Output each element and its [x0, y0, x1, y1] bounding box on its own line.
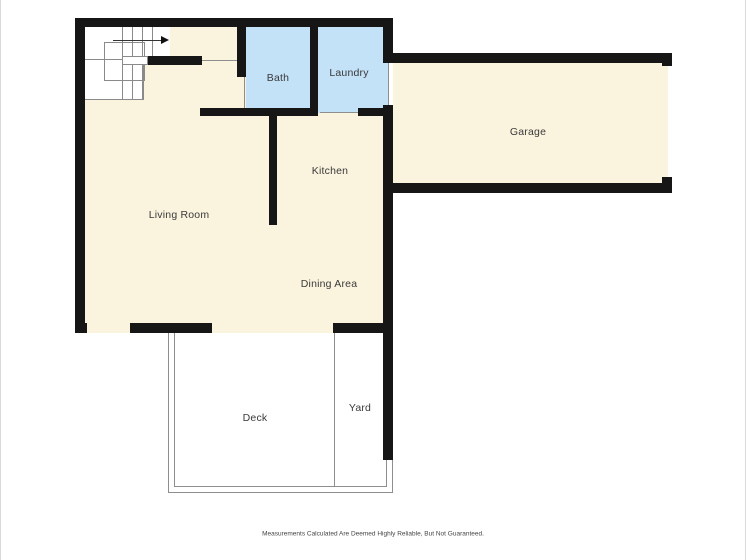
- wall-garage-right-stub-bottom: [662, 177, 672, 193]
- wall-garage-top: [393, 53, 672, 63]
- disclaimer-text: Measurements Calculated Are Deemed Highl…: [262, 531, 484, 538]
- laundry-door-line: [320, 112, 358, 113]
- wall-right-main: [383, 105, 393, 323]
- room-label-laundry: Laundry: [329, 67, 368, 79]
- wall-stair-half: [148, 56, 202, 65]
- wall-right-upper: [383, 18, 393, 63]
- room-label-kitchen: Kitchen: [312, 165, 348, 177]
- deck-rail-outer-right: [392, 460, 393, 493]
- wall-garage-right-stub-top: [662, 53, 672, 66]
- wall-garage-bottom: [393, 183, 672, 193]
- wall-kitchen-top-a: [200, 108, 318, 116]
- garage-door-line: [388, 63, 389, 105]
- room-label-bath: Bath: [267, 72, 289, 84]
- room-label-yard: Yard: [349, 402, 371, 414]
- wall-bottom-segment-1: [130, 323, 212, 333]
- room-label-garage: Garage: [510, 126, 546, 138]
- wall-kitchen-top-b: [358, 108, 383, 116]
- stair-start-marker: [122, 56, 148, 65]
- deck-rail-inner-right: [386, 460, 387, 487]
- wall-yard-right: [383, 333, 393, 460]
- deck-rail-inner-left: [174, 333, 175, 487]
- room-label-deck: Deck: [243, 412, 268, 424]
- deck-rail-outer-bottom: [168, 492, 393, 493]
- wall-bottom-left-stub: [75, 323, 87, 333]
- bath-floor-fill: [246, 27, 310, 112]
- room-label-dining-area: Dining Area: [301, 278, 357, 290]
- wall-living-kitchen: [269, 116, 277, 225]
- stair-bottom-line: [85, 99, 144, 100]
- floorplan-canvas: Bath Laundry Garage Kitchen Living Room …: [0, 0, 747, 560]
- hall-opening-line: [202, 60, 237, 61]
- deck-rail-outer-left: [168, 333, 169, 493]
- wall-bath-laundry-divider: [310, 27, 318, 112]
- wall-left: [75, 18, 85, 333]
- wall-bottom-segment-2: [333, 323, 393, 333]
- room-label-living-room: Living Room: [149, 209, 210, 221]
- deck-yard-separator-line: [334, 333, 335, 486]
- stair-arrow-shaft: [113, 40, 162, 41]
- wall-top: [75, 18, 393, 27]
- page-edge-left: [0, 0, 1, 560]
- wall-bath-left: [237, 27, 246, 77]
- page-edge-right: [745, 0, 746, 560]
- deck-rail-inner-bottom: [174, 486, 387, 487]
- bath-door-line: [244, 77, 245, 108]
- garage-floor-fill: [393, 63, 668, 183]
- stair-direction-arrow-icon: [161, 36, 169, 44]
